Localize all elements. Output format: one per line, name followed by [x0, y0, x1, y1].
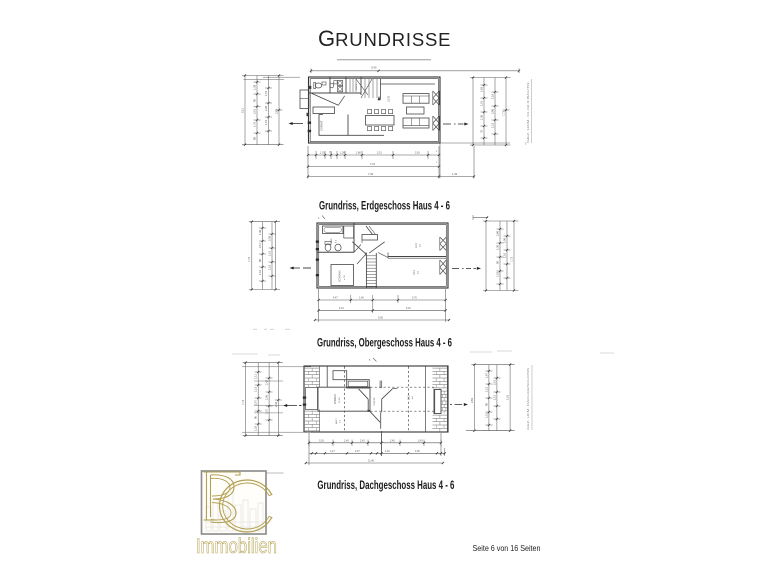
svg-text:1,13: 1,13	[254, 386, 258, 392]
svg-text:1,36: 1,36	[480, 114, 484, 120]
svg-text:9,99: 9,99	[371, 66, 377, 70]
svg-text:1,47: 1,47	[330, 450, 335, 453]
svg-text:1,40: 1,40	[344, 439, 349, 442]
svg-text:1,25: 1,25	[254, 425, 258, 431]
svg-text:2,40: 2,40	[390, 439, 395, 442]
svg-text:1,51: 1,51	[258, 269, 262, 275]
svg-text:2,76: 2,76	[412, 297, 417, 300]
svg-text:Immobilien: Immobilien	[196, 535, 277, 558]
svg-text:1,51: 1,51	[491, 122, 495, 128]
svg-text:96: 96	[253, 99, 257, 102]
svg-text:7,73: 7,73	[510, 256, 514, 262]
svg-text:n. 50: n. 50	[344, 274, 346, 280]
svg-text:4,44: 4,44	[339, 307, 344, 310]
svg-text:1,51: 1,51	[264, 90, 268, 96]
svg-text:1,13: 1,13	[492, 394, 496, 400]
svg-text:2,63: 2,63	[415, 152, 420, 155]
svg-text:5,01: 5,01	[406, 307, 411, 310]
svg-text:m2: m2	[412, 395, 414, 399]
svg-text:1,88: 1,88	[356, 152, 361, 155]
svg-text:1,13: 1,13	[484, 386, 488, 392]
svg-text:1,36: 1,36	[258, 229, 262, 235]
svg-text:GEZ. HFM. 01.02.9 BAUTR.: GEZ. HFM. 01.02.9 BAUTR.	[526, 80, 530, 143]
svg-text:2,86: 2,86	[496, 230, 500, 236]
svg-text:86: 86	[258, 259, 262, 262]
svg-text:11,40: 11,40	[368, 460, 375, 463]
svg-text:m2: m2	[420, 243, 422, 247]
svg-text:88: 88	[253, 137, 257, 140]
svg-text:98: 98	[496, 261, 500, 264]
svg-text:1,96: 1,96	[265, 394, 269, 400]
svg-text:1,16: 1,16	[491, 93, 495, 99]
svg-text:1,38: 1,38	[340, 152, 345, 155]
svg-text:2,47: 2,47	[355, 450, 360, 453]
svg-text:Seite 6 von 16 Seiten: Seite 6 von 16 Seiten	[473, 544, 541, 553]
svg-text:2,61: 2,61	[275, 108, 279, 114]
svg-text:1,49: 1,49	[452, 172, 458, 176]
svg-text:2,51: 2,51	[492, 379, 496, 385]
svg-text:1,01: 1,01	[480, 100, 484, 106]
svg-text:ABST.: ABST.	[335, 418, 338, 424]
svg-text:2,11: 2,11	[258, 243, 262, 248]
svg-text:Grundriss, Erdgeschoss Haus 4: Grundriss, Erdgeschoss Haus 4 - 6	[319, 200, 450, 212]
svg-text:1,67: 1,67	[484, 372, 488, 378]
svg-text:1,76: 1,76	[253, 121, 257, 127]
svg-text:1,46: 1,46	[359, 297, 364, 300]
svg-text:15,98: 15,98	[339, 397, 341, 403]
svg-text:4,47: 4,47	[333, 297, 338, 300]
svg-text:15,75: 15,75	[388, 95, 391, 102]
svg-text:2,07: 2,07	[254, 399, 258, 405]
svg-text:2,86: 2,86	[491, 108, 495, 114]
svg-text:15,3: 15,3	[413, 270, 416, 275]
svg-text:1,07: 1,07	[265, 408, 269, 414]
svg-text:2,42: 2,42	[274, 401, 278, 407]
svg-text:2,42: 2,42	[360, 439, 365, 442]
svg-text:1,01: 1,01	[320, 152, 325, 155]
svg-text:Grundriss, Dachgeschoss Haus 4: Grundriss, Dachgeschoss Haus 4 - 6	[317, 478, 454, 492]
svg-text:2: 2	[436, 162, 438, 164]
svg-text:1,91: 1,91	[506, 394, 510, 400]
svg-text:9,05: 9,05	[378, 317, 383, 320]
svg-text:5: 5	[369, 359, 371, 362]
svg-text:2,42: 2,42	[265, 379, 269, 385]
svg-text:76: 76	[480, 130, 484, 133]
svg-text:1,36: 1,36	[496, 244, 500, 250]
svg-text:15,3: 15,3	[408, 395, 411, 400]
svg-text:1,16: 1,16	[503, 252, 507, 258]
svg-text:7,49: 7,49	[368, 172, 374, 176]
svg-text:98: 98	[484, 403, 488, 406]
svg-text:2,36: 2,36	[268, 235, 272, 241]
svg-text:8,5: 8,5	[336, 239, 338, 243]
svg-text:1,40: 1,40	[385, 450, 390, 453]
svg-text:2,26: 2,26	[264, 105, 268, 111]
svg-text:GRUNDRISSE: GRUNDRISSE	[318, 26, 451, 51]
svg-text:SCHRANK: SCHRANK	[339, 270, 342, 282]
svg-text:1,01: 1,01	[268, 250, 272, 256]
svg-text:4,35: 4,35	[415, 450, 420, 453]
svg-text:2,01: 2,01	[253, 108, 257, 114]
svg-text:BAD: BAD	[330, 238, 333, 243]
svg-text:3,03: 3,03	[319, 439, 324, 442]
svg-text:7,73: 7,73	[241, 399, 245, 405]
svg-text:7,01: 7,01	[370, 162, 376, 166]
svg-text:ZIMMER: ZIMMER	[334, 394, 337, 404]
svg-text:DIELE: DIELE	[356, 83, 358, 90]
svg-text:1,11: 1,11	[254, 374, 258, 379]
svg-text:7,73: 7,73	[247, 256, 251, 262]
svg-text:1,16: 1,16	[496, 271, 500, 277]
svg-text:1,16: 1,16	[268, 264, 272, 270]
svg-text:2,63: 2,63	[470, 397, 474, 403]
svg-text:7,73: 7,73	[502, 110, 506, 116]
svg-text:4: 4	[318, 217, 320, 220]
svg-text:1,38: 1,38	[253, 84, 257, 90]
svg-text:12,3: 12,3	[415, 243, 418, 248]
svg-text:1,96: 1,96	[503, 237, 507, 243]
svg-text:96: 96	[254, 416, 258, 419]
svg-text:1,63: 1,63	[480, 86, 484, 92]
svg-text:3,43: 3,43	[418, 439, 423, 442]
svg-text:GEZ. HFM. DACHGESCHOSS: GEZ. HFM. DACHGESCHOSS	[526, 368, 530, 430]
svg-text:4,5: 4,5	[340, 419, 342, 423]
svg-text:1,51: 1,51	[484, 412, 488, 418]
svg-text:TREPPE: TREPPE	[374, 397, 376, 406]
svg-text:Grundriss, Obergeschoss Haus 4: Grundriss, Obergeschoss Haus 4 - 6	[317, 337, 452, 349]
svg-text:m2: m2	[418, 270, 420, 274]
svg-text:1,01: 1,01	[264, 119, 268, 125]
svg-text:5,11: 5,11	[241, 108, 245, 113]
svg-text:2,51: 2,51	[377, 152, 382, 155]
svg-text:VORRAT: VORRAT	[320, 120, 324, 131]
svg-text:4: 4	[436, 151, 438, 153]
